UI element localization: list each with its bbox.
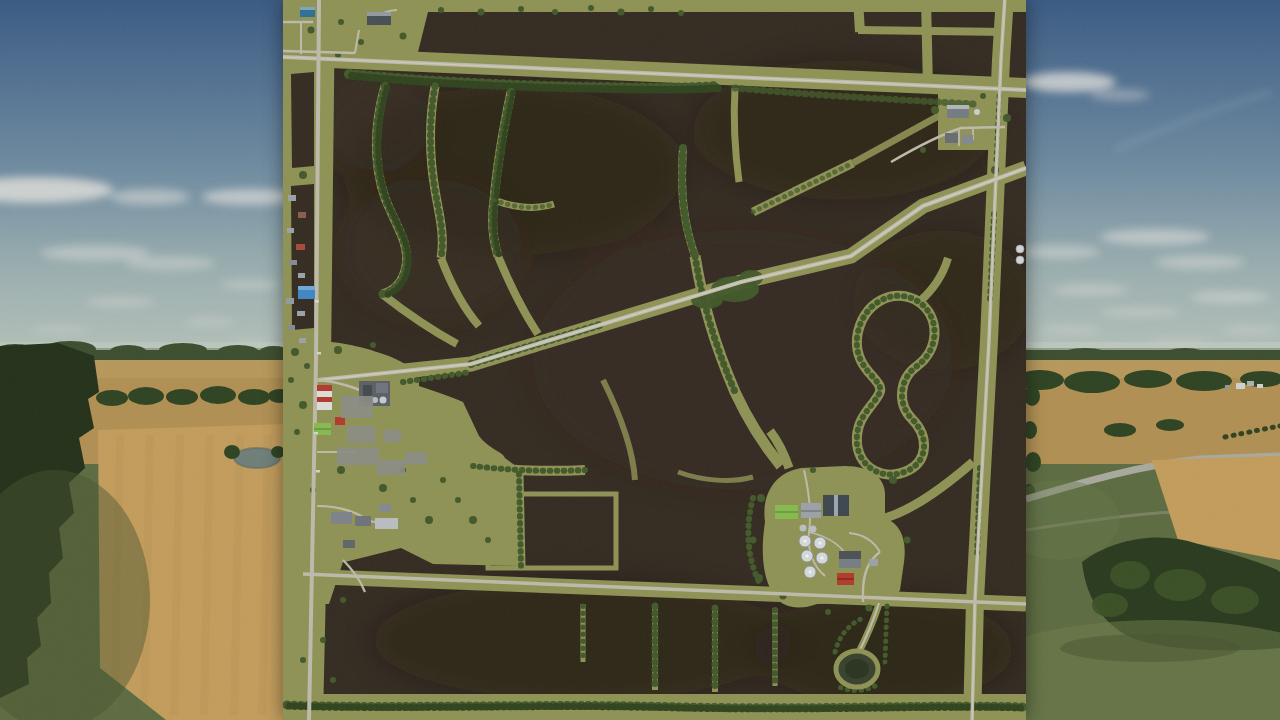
- aerial-map[interactable]: [283, 0, 1026, 720]
- map-grain: [283, 0, 1026, 720]
- game-screen: [0, 0, 1280, 720]
